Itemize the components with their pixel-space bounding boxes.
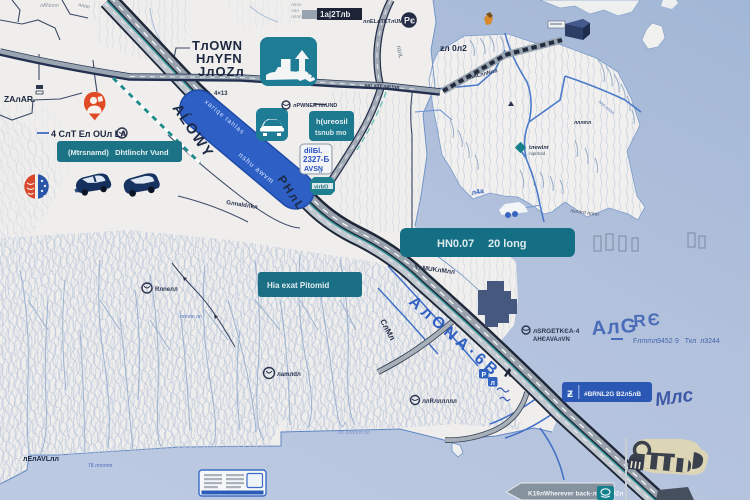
svg-text:(Mtrsnamd) Dhtlinchr Vund: (Mtrsnamd) Dhtlinchr Vund	[68, 148, 169, 157]
svg-text:2327-Б: 2327-Б	[303, 155, 329, 164]
svg-text:ллELлTETлUM: ллELлTETлUM	[363, 19, 403, 25]
svg-text:ллRлллллл: ллRлллллл	[422, 399, 457, 405]
svg-text:Hia exat Pitomid: Hia exat Pitomid	[267, 281, 329, 290]
svg-text:лллл: лллл	[291, 14, 302, 19]
svg-text:h(ureosil: h(ureosil	[316, 117, 348, 126]
svg-text:JлOZл: JлOZл	[198, 64, 245, 79]
svg-text:Fлmmл9452·9 Tкл л3244: Fлmmл9452·9 Tкл л3244	[633, 338, 720, 345]
svg-text:#BRNL2G B2л5лB: #BRNL2G B2л5лB	[584, 391, 641, 398]
svg-text:RЄ: RЄ	[633, 310, 663, 331]
svg-text:лamлdл: лamлdл	[277, 372, 301, 378]
svg-text:virbŊ: virbŊ	[314, 185, 328, 191]
svg-text:лллл: лллл	[291, 2, 302, 7]
svg-text:лANллл: лANллл	[40, 3, 59, 9]
svg-text:лSRGETKЄA·4: лSRGETKЄA·4	[533, 328, 580, 335]
svg-text:лiprmsd: лiprmsd	[529, 151, 546, 156]
svg-text:4×13: 4×13	[214, 91, 228, 97]
svg-text:78 лллллл: 78 лллллл	[88, 463, 113, 469]
svg-text:AVSN̪: AVSN̪	[304, 166, 323, 173]
svg-text:tsnub mo: tsnub mo	[315, 130, 347, 137]
svg-text:20 long: 20 long	[488, 238, 527, 250]
svg-text:ллллл лл: ллллл лл	[180, 314, 202, 320]
svg-text:ƶл 0л2: ƶл 0л2	[440, 43, 467, 53]
svg-text:AлG: AлG	[591, 315, 638, 340]
svg-text:ƶ: ƶ	[567, 386, 573, 400]
svg-text:HN0.07: HN0.07	[437, 238, 474, 250]
svg-text:Pє: Pє	[404, 16, 415, 26]
svg-text:лллmл: лллmл	[574, 120, 591, 126]
svg-text:AHЄAVAлVN: AHЄAVAлVN	[533, 337, 570, 343]
svg-text:лл лллллл лл: лл лллллл лл	[338, 430, 370, 436]
svg-text:1a|2Tлb: 1a|2Tлb	[320, 10, 351, 19]
svg-text:4 CлT Eл OUл LA: 4 CлT Eл OUл LA	[51, 129, 127, 139]
svg-text:ZAлAR.: ZAлAR.	[4, 94, 35, 104]
svg-text:ллл: ллл	[291, 8, 299, 13]
svg-text:Rлneлл: Rлneлл	[155, 287, 178, 293]
svg-text:лEлAVLлл: лEлAVLлл	[23, 456, 59, 463]
svg-text:л: л	[491, 380, 495, 387]
svg-text:dilБl.: dilБl.	[304, 146, 322, 155]
